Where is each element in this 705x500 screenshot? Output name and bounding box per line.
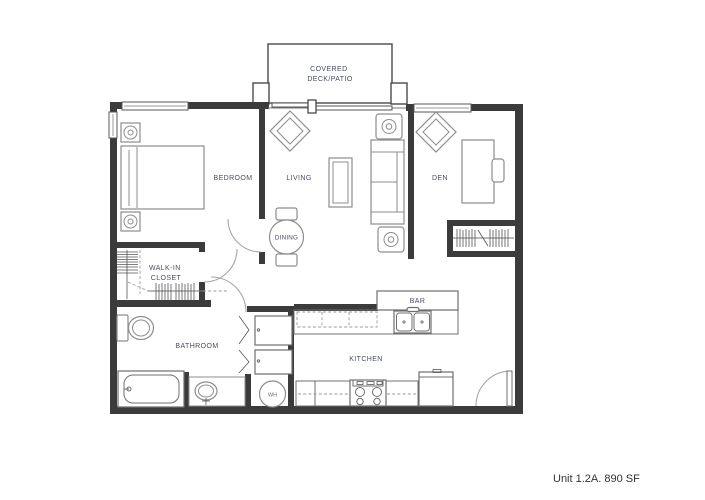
washer-dryer-stack <box>239 316 292 374</box>
walk-in-closet-label: WALK-IN CLOSET <box>149 265 183 282</box>
kitchen-label: KITCHEN <box>349 356 383 363</box>
water-heater: WH <box>260 381 286 407</box>
toilet <box>117 315 154 341</box>
walk-in-closet: WALK-IN CLOSET <box>117 250 228 300</box>
bifold-door <box>239 350 249 373</box>
armchair <box>270 111 310 151</box>
deck-pillar-left <box>253 83 269 104</box>
left-wall-window <box>109 112 117 138</box>
bedroom: BEDROOM <box>121 123 252 231</box>
den-closet-rod <box>453 229 514 247</box>
bifold-door <box>239 316 249 344</box>
unit-label: Unit 1.2A. 890 SF <box>553 473 640 485</box>
dining-chair <box>276 254 297 266</box>
closet-door-arc <box>204 249 237 282</box>
floor-plan-page: COVERED DECK/PATIO <box>0 0 705 500</box>
kitchen-counter-upper <box>294 310 458 334</box>
bedroom-label: BEDROOM <box>214 175 253 182</box>
entry-door-arc <box>476 371 511 406</box>
bathroom: WH BATHROOM <box>117 315 292 407</box>
living-label: LIVING <box>286 175 311 182</box>
bedroom-window <box>122 102 188 110</box>
den-label: DEN <box>432 175 448 182</box>
dining-area: DINING <box>270 208 304 266</box>
den-window <box>414 104 471 112</box>
armchair <box>416 112 456 152</box>
bed <box>121 146 204 209</box>
end-table <box>376 114 402 139</box>
sofa <box>371 140 404 224</box>
desk <box>462 140 494 203</box>
covered-deck: COVERED DECK/PATIO <box>253 44 407 104</box>
deck-pillar-right <box>391 83 407 104</box>
range-stove <box>350 380 386 406</box>
refrigerator <box>419 370 453 407</box>
entry-door-leaf <box>507 371 512 406</box>
floor-plan-drawing: COVERED DECK/PATIO <box>0 0 705 500</box>
bar-label: BAR <box>410 298 426 305</box>
kitchen-sink <box>394 308 431 334</box>
den: DEN <box>416 112 514 247</box>
coffee-table <box>329 158 352 207</box>
bathtub <box>118 371 184 407</box>
dining-label: DINING <box>275 235 298 242</box>
faucet-icon <box>407 308 419 312</box>
water-heater-label: WH <box>268 393 277 399</box>
bedroom-door-arc <box>228 219 261 252</box>
vanity-sink <box>189 377 245 406</box>
end-table <box>378 227 404 252</box>
bathroom-label: BATHROOM <box>175 343 218 350</box>
bathroom-door-arc <box>211 277 246 312</box>
dining-chair <box>276 208 297 220</box>
desk-chair <box>492 159 504 182</box>
